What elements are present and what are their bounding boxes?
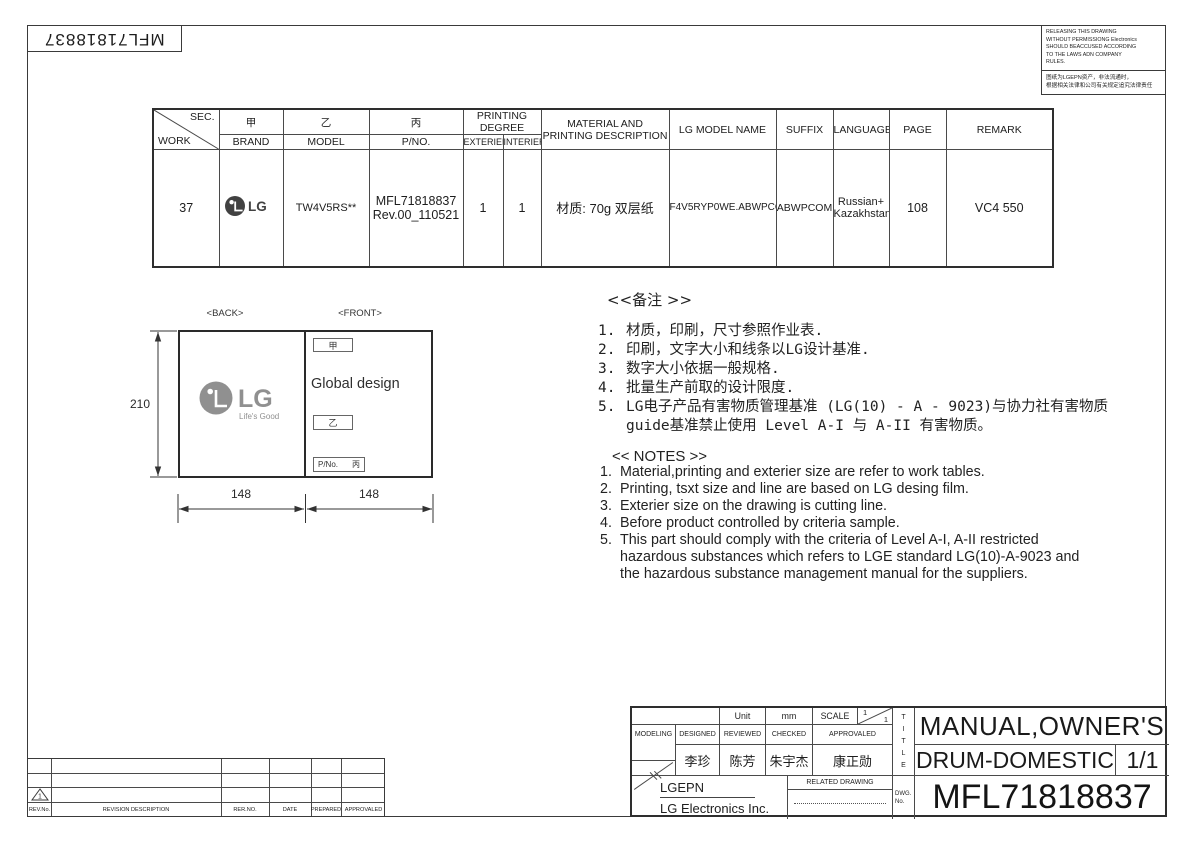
release-warning-chinese: 图纸为LGEPN资产，非法流通时， 根据相关法律和公司有关规定追究法律责任 [1042,71,1165,95]
header-page: PAGE [889,109,946,150]
work-label: WORK [158,135,191,147]
header-yi: 乙 [283,109,369,135]
header-model: MODEL [283,135,369,150]
list-item: 1.Material,printing and exterier size ar… [600,464,1130,481]
cell-language: Russian+ Kazakhstan [833,150,889,267]
cell-suffix: ABWPCOM [776,150,833,267]
related-drawing-label: RELATED DRAWING [788,776,892,790]
title-block: Unit mm SCALE 1 1 MODELING DESIGNED REVI… [630,706,1167,817]
notes-en-list: 1.Material,printing and exterier size ar… [600,464,1130,583]
cell-model: TW4V5RS** [283,150,369,267]
scale-numerator: 1 [863,708,867,717]
revision-description-label: REVISION DESCRIPTION [51,802,221,818]
header-bing: 丙 [369,109,463,135]
notes-en-title: << NOTES >> [612,448,707,465]
approvaled-rev-label: APPROVALED [341,802,386,818]
dimension-lines [120,300,465,535]
header-material: MATERIAL AND PRINTING DESCRIPTION [541,109,669,150]
sheet-number: 1/1 [1115,744,1169,775]
cell-exterier: 1 [463,150,503,267]
header-remark: REMARK [946,109,1053,150]
header-language: LANGUAGE [833,109,889,150]
cell-brand: LG [219,150,283,267]
rer-no-label: RER.NO. [221,802,269,818]
dwg-no-label: DWG. No. [892,775,914,819]
mirrored-doc-number-box: MFL71818837 [27,25,182,52]
cell-work: 37 [153,150,219,267]
reviewed-name: 陈芳 [719,744,765,775]
scale-label: SCALE [812,708,857,724]
header-interier: INTERIER [503,135,541,150]
svg-text:LG: LG [248,199,267,214]
mirrored-doc-number: MFL71818837 [44,29,165,49]
header-suffix: SUFFIX [776,109,833,150]
revision-table: 1 REV.No. REVISION DESCRIPTION RER.NO. D… [27,758,385,817]
cell-pno: MFL71818837 Rev.00_110521 [369,150,463,267]
company-short: LGEPN [660,780,755,798]
revision-grid-line [28,787,384,788]
dim-width-right-148: 148 [355,487,383,501]
list-item: 5.LG电子产品有害物质管理基准 (LG(10) - A - 9023)与协力社… [598,398,1143,436]
designed-label: DESIGNED [675,724,719,744]
designed-name: 李珍 [675,744,719,775]
notes-cn-title: <<备注 >> [607,289,692,310]
list-item: 4.批量生产前取的设计限度. [598,379,1143,398]
revision-grid-line [28,773,384,774]
drawing-sheet: MFL71818837 RELEASING THIS DRAWING WITHO… [0,0,1191,842]
list-item: 2.Printing, tsxt size and line are based… [600,481,1130,498]
header-lg-model-name: LG MODEL NAME [669,109,776,150]
title-line1: MANUAL,OWNER'S [914,708,1169,744]
checked-name: 朱宇杰 [765,744,812,775]
dwg-number: MFL71818837 [914,775,1169,819]
approvaled-name: 康正勋 [812,744,892,775]
company-cell: LGEPN LG Electronics Inc. [632,775,787,819]
sec-work-header-cell: SEC. WORK [153,109,219,150]
unit-label: Unit [719,708,765,724]
lg-logo-icon: LG [224,194,278,218]
dim-height-210: 210 [126,397,154,411]
list-item: 2.印刷，文字大小和线条以LG设计基准. [598,341,1143,360]
header-jia: 甲 [219,109,283,135]
release-warning-box: RELEASING THIS DRAWING WITHOUT PERMISSIO… [1041,25,1166,95]
header-pno: P/NO. [369,135,463,150]
release-warning-english: RELEASING THIS DRAWING WITHOUT PERMISSIO… [1042,26,1165,71]
prepared-label: PREPARED [311,802,341,818]
header-brand: BRAND [219,135,283,150]
dim-width-left-148: 148 [227,487,255,501]
reviewed-label: REVIEWED [719,724,765,744]
cell-material: 材质: 70g 双层纸 [541,150,669,267]
rev-no-label: REV.No. [28,802,51,818]
svg-text:1: 1 [38,794,42,801]
unit-value: mm [765,708,812,724]
table-row: 37 LG TW4V5RS** MFL71818837 Rev.00_11052… [153,150,1053,267]
list-item: 1.材质，印刷，尺寸参照作业表. [598,322,1143,341]
list-item: 3.Exterier size on the drawing is cuttin… [600,498,1130,515]
list-item: 5.This part should comply with the crite… [600,532,1130,583]
company-full: LG Electronics Inc. [660,798,769,816]
header-printing-degree: PRINTING DEGREE [463,109,541,135]
cell-interier: 1 [503,150,541,267]
approvaled-label: APPROVALED [812,724,892,744]
related-drawing-dotted-line [794,803,886,804]
scale-value-cell: 1 1 [857,708,892,724]
header-exterier: EXTERIER [463,135,503,150]
related-drawing-cell: RELATED DRAWING [787,775,892,819]
checked-label: CHECKED [765,724,812,744]
cell-page: 108 [889,150,946,267]
list-item: 4.Before product controlled by criteria … [600,515,1130,532]
scale-denominator: 1 [884,715,888,724]
modeling-label: MODELING [632,724,675,744]
notes-cn-list: 1.材质，印刷，尺寸参照作业表. 2.印刷，文字大小和线条以LG设计基准. 3.… [598,322,1143,436]
sec-label: SEC. [190,111,215,123]
list-item: 3.数字大小依据一般规格. [598,360,1143,379]
date-label: DATE [269,802,311,818]
cell-lg-model-name: F4V5RYP0WE.ABWPCOM [669,150,776,267]
title-vertical-label: T I T L E [892,708,914,775]
revision-triangle-icon: 1 [31,788,49,801]
title-block-empty-cell [632,708,719,724]
work-table: SEC. WORK 甲 乙 丙 PRINTING DEGREE MATERIAL… [152,108,1054,268]
cell-remark: VC4 550 [946,150,1053,267]
title-line2: DRUM-DOMESTIC [914,744,1115,775]
